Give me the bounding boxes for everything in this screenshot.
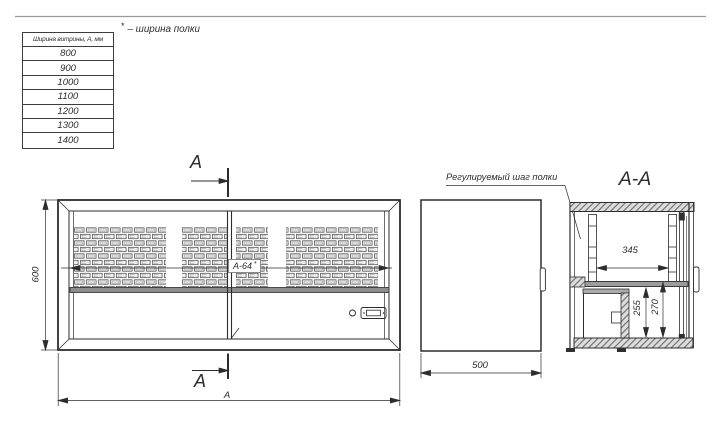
section-marker-label-bottom: А — [194, 371, 206, 392]
size-table: Ширина витрины, А, мм 800 900 1000 1100 … — [22, 32, 114, 149]
front-view — [58, 200, 400, 350]
footnote-marker: * — [121, 21, 125, 31]
size-table-row: 1300 — [23, 119, 113, 133]
clearance-dimension-label: 255 — [632, 290, 642, 326]
shelf-height-dimension-label: 270 — [650, 289, 660, 325]
width-dimension-label: А — [219, 390, 235, 401]
callout-leader — [446, 186, 581, 240]
door-handle — [361, 308, 386, 319]
size-table-header: Ширина витрины, А, мм — [23, 33, 113, 47]
section-bottom-panel — [574, 338, 693, 348]
size-table-row: 1400 — [23, 133, 113, 147]
perforated-panels — [74, 227, 378, 288]
adjustable-shelf-callout: Регулируемый шаг полки — [446, 172, 557, 182]
door-lock — [350, 310, 356, 316]
size-table-row: 1000 — [23, 76, 113, 90]
side-view — [421, 200, 545, 378]
section-title: А-А — [608, 168, 662, 191]
section-marker-label-top: А — [190, 152, 202, 173]
shelf — [576, 282, 688, 287]
section-handle — [694, 267, 700, 292]
depth-dimension-label: 500 — [460, 360, 500, 371]
size-table-row: 900 — [23, 61, 113, 75]
height-dimension-label: 600 — [31, 255, 42, 295]
footnote: *– ширина полки — [121, 24, 200, 35]
section-view — [566, 202, 699, 352]
size-table-row: 800 — [23, 47, 113, 61]
size-table-row: 1200 — [23, 105, 113, 119]
section-top-panel — [570, 203, 694, 212]
size-table-row: 1100 — [23, 90, 113, 104]
lower-compartment — [583, 289, 629, 346]
drawing-sheet: Ширина витрины, А, мм 800 900 1000 1100 … — [0, 0, 720, 431]
shelf-width-dimension-label: А-64* — [228, 259, 261, 274]
footnote-text: – ширина полки — [128, 24, 200, 35]
door-bottom-rail — [70, 288, 389, 293]
rail-spacing-dimension-label: 345 — [610, 245, 650, 256]
side-handle — [540, 268, 545, 291]
